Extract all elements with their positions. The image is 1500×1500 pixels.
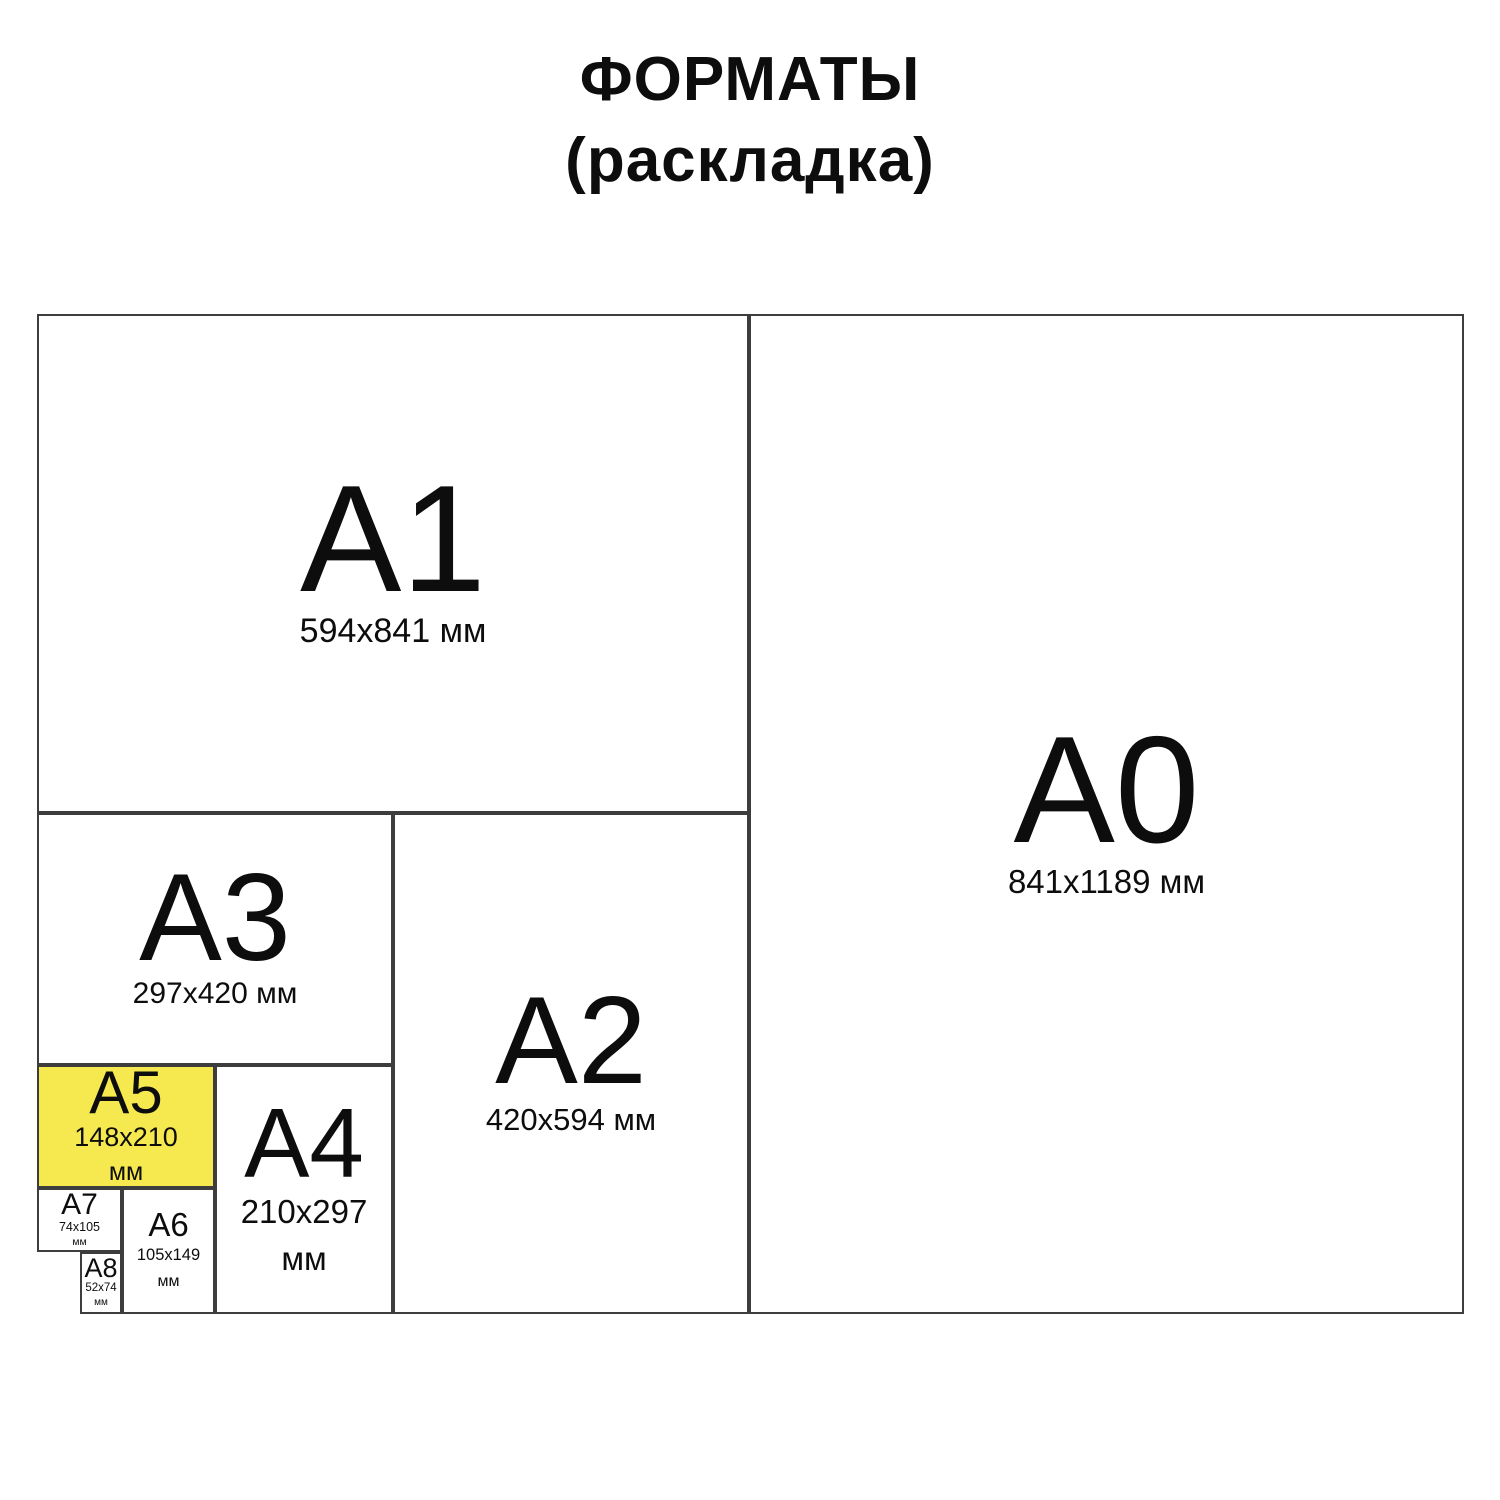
format-a6-box: A6 105x149 мм (122, 1188, 215, 1314)
format-a0-box: A0 841x1189 мм (749, 314, 1464, 1314)
format-a2-label: A2 (495, 992, 647, 1091)
format-a8-label: A8 (84, 1258, 117, 1280)
format-a7-box: A7 74x105 мм (37, 1188, 122, 1252)
format-a4-dimensions: 210x297 (241, 1195, 368, 1228)
format-a6-label: A6 (148, 1212, 188, 1238)
format-a1-box: A1 594x841 мм (37, 314, 749, 813)
format-a5-dimensions: 148x210 (74, 1124, 178, 1151)
format-a0-dimensions: 841x1189 мм (1008, 865, 1205, 898)
page-title: ФОРМАТЫ (раскладка) (0, 40, 1500, 201)
format-a0-label: A0 (1014, 730, 1200, 852)
format-a3-dimensions: 297x420 мм (133, 979, 298, 1009)
format-a2-box: A2 420x594 мм (393, 813, 749, 1314)
format-a5-unit: мм (109, 1160, 143, 1185)
format-a4-label: A4 (244, 1104, 364, 1182)
format-a5-box-highlighted: A5 148x210 мм (37, 1065, 215, 1188)
format-a6-unit: мм (158, 1274, 180, 1290)
format-a4-unit: мм (281, 1242, 326, 1275)
page-title-line2: (раскладка) (0, 121, 1500, 202)
format-a7-unit: мм (72, 1237, 86, 1248)
format-a8-dimensions: 52x74 (85, 1283, 116, 1295)
format-a5-label: A5 (89, 1069, 162, 1117)
format-a3-label: A3 (139, 869, 291, 968)
format-a1-dimensions: 594x841 мм (300, 614, 487, 648)
format-a4-box: A4 210x297 мм (215, 1065, 393, 1314)
format-a1-label: A1 (300, 479, 486, 601)
format-a3-box: A3 297x420 мм (37, 813, 393, 1065)
format-a2-dimensions: 420x594 мм (486, 1104, 656, 1135)
format-a7-label: A7 (61, 1193, 98, 1217)
format-a8-unit: мм (94, 1298, 108, 1308)
page-title-line1: ФОРМАТЫ (0, 40, 1500, 121)
format-a6-dimensions: 105x149 (137, 1247, 200, 1264)
format-a8-box: A8 52x74 мм (80, 1252, 122, 1314)
format-a7-dimensions: 74x105 (59, 1221, 100, 1234)
